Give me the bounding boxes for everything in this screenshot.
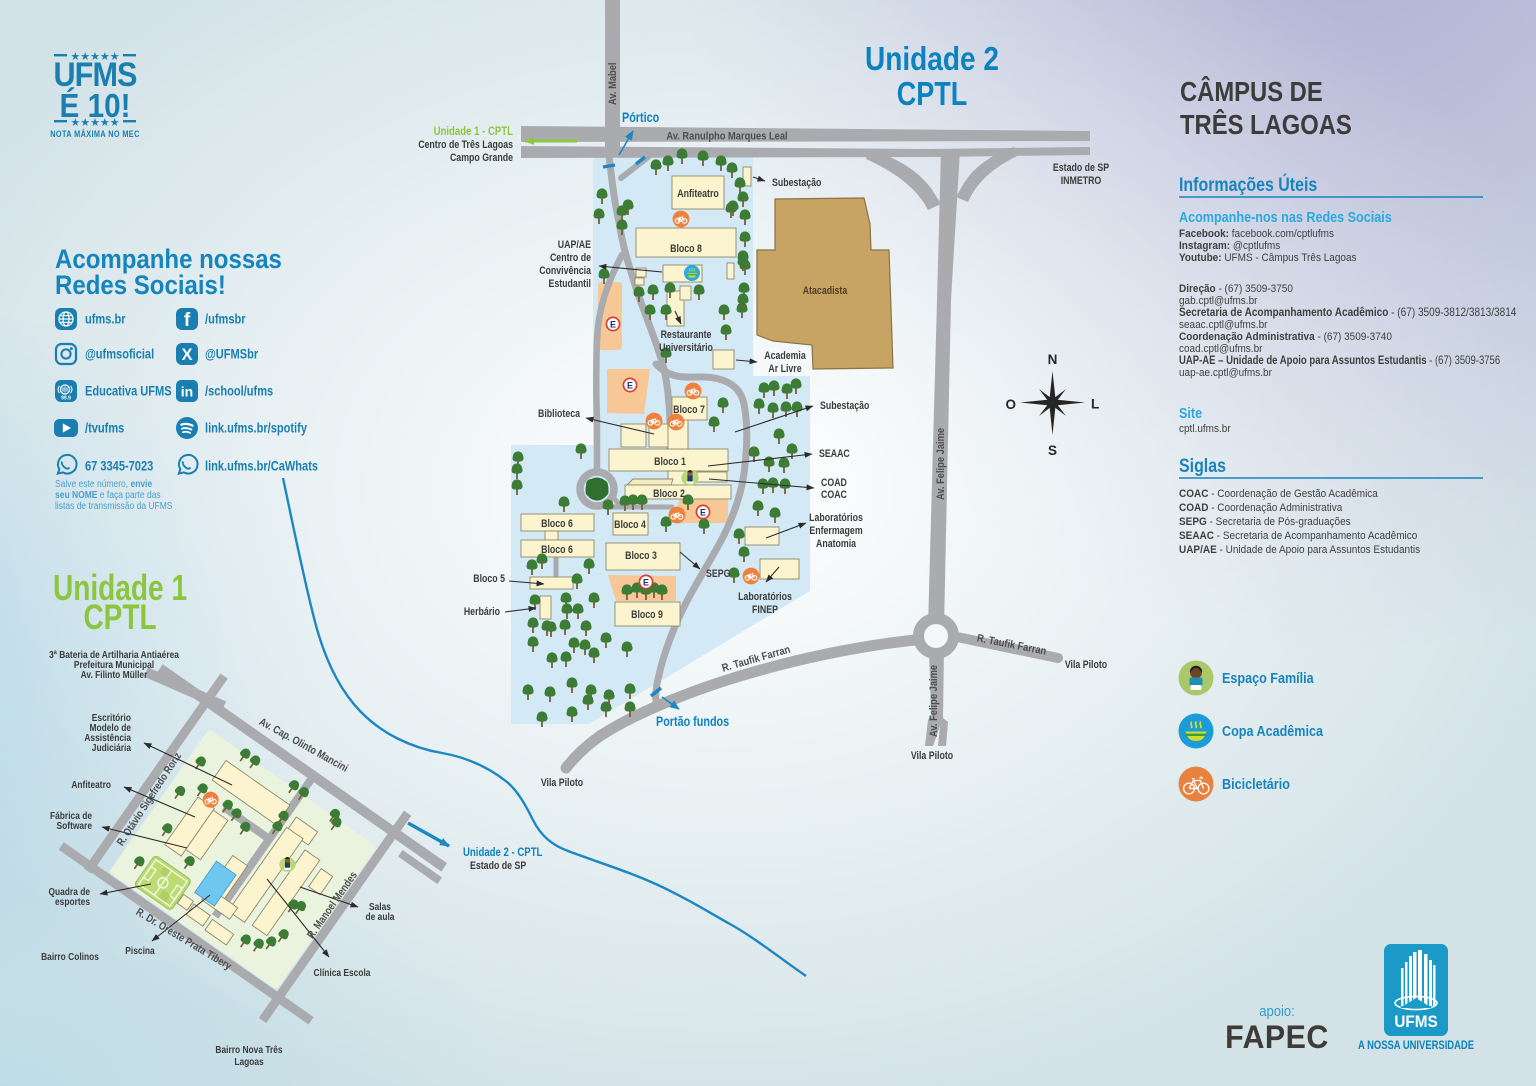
svg-text:Lagoas: Lagoas: [234, 1056, 263, 1068]
svg-text:A NOSSA UNIVERSIDADE: A NOSSA UNIVERSIDADE: [1358, 1039, 1474, 1052]
svg-text:Secretaria de Acompanhamento A: Secretaria de Acompanhamento Acadêmico -…: [1179, 306, 1516, 319]
svg-text:SEAAC - Secretaria de Acompanh: SEAAC - Secretaria de Acompanhamento Aca…: [1179, 529, 1417, 542]
svg-text:Copa Acadêmica: Copa Acadêmica: [1222, 722, 1323, 739]
svg-text:TRÊS LAGOAS: TRÊS LAGOAS: [1180, 108, 1352, 140]
svg-text:@UFMSbr: @UFMSbr: [205, 346, 258, 361]
svg-text:Herbário: Herbário: [464, 606, 500, 618]
svg-text:O: O: [1005, 397, 1016, 412]
svg-text:Educativa UFMS: Educativa UFMS: [85, 383, 172, 398]
svg-text:ufms.br: ufms.br: [85, 311, 126, 326]
svg-text:X: X: [181, 346, 192, 364]
svg-text:Instagram: @cptlufms: Instagram: @cptlufms: [1179, 239, 1280, 252]
svg-text:S: S: [1048, 443, 1057, 458]
svg-text:Bloco 5: Bloco 5: [473, 573, 505, 585]
svg-text:Convivência: Convivência: [539, 265, 591, 277]
svg-text:Estudantil: Estudantil: [548, 278, 591, 290]
svg-text:Unidade 2 - CPTL: Unidade 2 - CPTL: [463, 846, 543, 859]
svg-text:COAC: COAC: [821, 489, 847, 501]
svg-text:esportes: esportes: [55, 896, 90, 908]
svg-text:Anfiteatro: Anfiteatro: [71, 779, 111, 791]
svg-text:Site: Site: [1179, 404, 1202, 421]
svg-text:/school/ufms: /school/ufms: [205, 383, 273, 398]
svg-text:COAD: COAD: [821, 477, 847, 489]
svg-text:Anatomia: Anatomia: [816, 538, 856, 550]
svg-text:Universitário: Universitário: [659, 342, 713, 354]
svg-text:UAP-AE – Unidade de Apoio para: UAP-AE – Unidade de Apoio para Assuntos …: [1179, 354, 1500, 367]
svg-text:Laboratórios: Laboratórios: [738, 591, 792, 603]
svg-text:listas de transmissão da UFMS: listas de transmissão da UFMS: [55, 500, 172, 511]
svg-text:Centro de Três Lagoas: Centro de Três Lagoas: [418, 139, 513, 151]
svg-text:INMETRO: INMETRO: [1061, 175, 1102, 187]
svg-text:Acompanhe-nos nas Redes Sociai: Acompanhe-nos nas Redes Sociais: [1179, 208, 1392, 225]
svg-text:apoio:: apoio:: [1259, 1003, 1295, 1019]
svg-text:FAPEC: FAPEC: [1225, 1019, 1329, 1055]
svg-text:Bairro Nova Três: Bairro Nova Três: [215, 1044, 282, 1056]
svg-text:Software: Software: [57, 820, 92, 832]
svg-text:Laboratórios: Laboratórios: [809, 512, 863, 524]
svg-text:Estado de SP: Estado de SP: [470, 860, 527, 872]
svg-text:Unidade 2: Unidade 2: [865, 41, 999, 78]
svg-text:Bloco 4: Bloco 4: [614, 519, 646, 531]
svg-text:CPTL: CPTL: [897, 77, 968, 113]
svg-text:COAD - Coordenação Administrat: COAD - Coordenação Administrativa: [1179, 501, 1342, 514]
svg-text:L: L: [1091, 397, 1099, 412]
svg-text:Academia: Academia: [764, 350, 806, 362]
svg-text:Pórtico: Pórtico: [622, 110, 659, 125]
svg-text:UAP/AE - Unidade de Apoio para: UAP/AE - Unidade de Apoio para Assuntos …: [1179, 543, 1420, 556]
svg-text:UAP/AE: UAP/AE: [558, 239, 592, 251]
svg-text:UFMS: UFMS: [1394, 1012, 1438, 1031]
svg-text:Bloco 6: Bloco 6: [541, 544, 573, 556]
svg-text:Biblioteca: Biblioteca: [538, 408, 580, 420]
svg-text:de aula: de aula: [366, 911, 396, 923]
svg-text:in: in: [181, 384, 193, 400]
svg-text:Salve este número, envie: Salve este número, envie: [55, 478, 152, 489]
svg-text:Vila Piloto: Vila Piloto: [541, 777, 583, 789]
svg-text:Enfermagem: Enfermagem: [809, 525, 862, 537]
svg-text:Bloco 9: Bloco 9: [631, 609, 663, 621]
svg-text:SEPG: SEPG: [706, 568, 731, 580]
svg-text:Youtube: UFMS - Câmpus Três La: Youtube: UFMS - Câmpus Três Lagoas: [1179, 251, 1357, 264]
svg-text:Centro de: Centro de: [550, 252, 591, 264]
svg-text:Coordenação Administrativa - (: Coordenação Administrativa - (67) 3509-3…: [1179, 330, 1392, 343]
svg-text:Unidade 1 - CPTL: Unidade 1 - CPTL: [434, 125, 514, 138]
svg-text:Portão fundos: Portão fundos: [656, 714, 729, 729]
svg-text:SEAAC: SEAAC: [819, 448, 850, 460]
svg-text:Bloco 8: Bloco 8: [670, 243, 702, 255]
svg-text:Anfiteatro: Anfiteatro: [677, 188, 719, 200]
svg-text:gab.cptl@ufms.br: gab.cptl@ufms.br: [1179, 294, 1258, 307]
svg-text:SEPG - Secretaria de Pós-gradu: SEPG - Secretaria de Pós-graduações: [1179, 515, 1351, 528]
svg-text:Campo Grande: Campo Grande: [450, 152, 513, 164]
svg-text:Bloco 1: Bloco 1: [654, 456, 686, 468]
svg-text:67 3345-7023: 67 3345-7023: [85, 458, 153, 473]
svg-text:R. Taufik Farran: R. Taufik Farran: [976, 633, 1047, 658]
svg-text:N: N: [1048, 352, 1058, 367]
svg-text:f: f: [184, 310, 191, 331]
svg-text:Informações Úteis: Informações Úteis: [1179, 173, 1317, 196]
svg-text:Direção - (67) 3509-3750: Direção - (67) 3509-3750: [1179, 282, 1293, 295]
svg-text:Redes Sociais!: Redes Sociais!: [55, 271, 226, 301]
svg-text:Espaço Família: Espaço Família: [1222, 669, 1314, 686]
svg-text:Bairro Colinos: Bairro Colinos: [41, 951, 99, 963]
svg-text:Bloco 6: Bloco 6: [541, 518, 573, 530]
svg-text:FINEP: FINEP: [752, 604, 778, 616]
svg-text:seu NOME e faça parte das: seu NOME e faça parte das: [55, 489, 161, 500]
svg-text:Bloco 2: Bloco 2: [653, 488, 685, 500]
svg-text:Facebook: facebook.com/cptlufm: Facebook: facebook.com/cptlufms: [1179, 227, 1334, 240]
svg-text:CÂMPUS DE: CÂMPUS DE: [1180, 75, 1323, 107]
svg-text:uap-ae.cptl@ufms.br: uap-ae.cptl@ufms.br: [1179, 366, 1272, 379]
svg-text:Judiciária: Judiciária: [92, 742, 132, 754]
svg-text:Av. Felipe Jaime: Av. Felipe Jaime: [935, 428, 947, 500]
svg-text:Bloco 7: Bloco 7: [673, 404, 705, 416]
svg-text:CPTL: CPTL: [83, 597, 156, 637]
svg-text:link.ufms.br/spotify: link.ufms.br/spotify: [205, 420, 307, 435]
svg-text:Vila Piloto: Vila Piloto: [911, 750, 953, 762]
svg-text:/tvufms: /tvufms: [85, 420, 124, 435]
svg-text:cptl.ufms.br: cptl.ufms.br: [1179, 422, 1231, 435]
svg-text:Estado de SP: Estado de SP: [1053, 162, 1110, 174]
svg-text:/ufmsbr: /ufmsbr: [205, 311, 246, 326]
svg-text:COAC - Coordenação de Gestão A: COAC - Coordenação de Gestão Acadêmica: [1179, 487, 1378, 500]
svg-text:Av. Felipe Jaime: Av. Felipe Jaime: [928, 665, 940, 737]
svg-text:Restaurante: Restaurante: [661, 329, 712, 341]
svg-text:Subestação: Subestação: [772, 177, 821, 189]
svg-text:Atacadista: Atacadista: [803, 285, 848, 297]
svg-text:Vila Piloto: Vila Piloto: [1065, 659, 1107, 671]
svg-text:Bicicletário: Bicicletário: [1222, 775, 1290, 792]
svg-text:Av. Filinto Müller: Av. Filinto Müller: [81, 669, 148, 681]
svg-text:NOTA MÁXIMA NO MEC: NOTA MÁXIMA NO MEC: [50, 128, 139, 139]
svg-text:Piscina: Piscina: [125, 945, 155, 957]
svg-text:Ar Livre: Ar Livre: [768, 363, 802, 375]
svg-text:Av. Mabel: Av. Mabel: [607, 62, 619, 105]
svg-text:seaac.cptl@ufms.br: seaac.cptl@ufms.br: [1179, 318, 1268, 331]
svg-text:Bloco 3: Bloco 3: [625, 550, 657, 562]
svg-text:@ufmsoficial: @ufmsoficial: [85, 346, 154, 361]
svg-text:Subestação: Subestação: [820, 400, 869, 412]
svg-text:Clínica Escola: Clínica Escola: [314, 967, 372, 979]
svg-text:Siglas: Siglas: [1179, 455, 1226, 477]
svg-text:link.ufms.br/CaWhats: link.ufms.br/CaWhats: [205, 458, 318, 473]
svg-text:Av. Ranulpho Marques Leal: Av. Ranulpho Marques Leal: [666, 131, 787, 143]
svg-text:99.9: 99.9: [61, 396, 71, 402]
